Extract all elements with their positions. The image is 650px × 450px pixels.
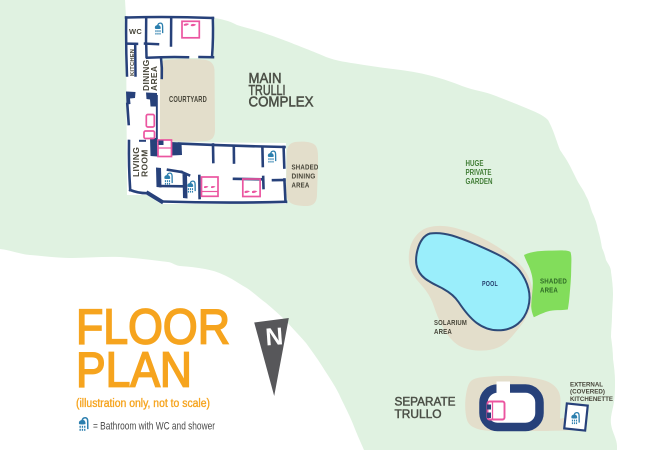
- svg-text:KITCHENETTE: KITCHENETTE: [570, 396, 614, 403]
- svg-text:KITCHEN: KITCHEN: [130, 49, 136, 76]
- svg-text:ROOM: ROOM: [140, 149, 150, 177]
- svg-text:HUGE: HUGE: [466, 159, 485, 168]
- svg-text:EXTERNAL: EXTERNAL: [570, 382, 603, 389]
- svg-text:AREA: AREA: [540, 288, 558, 295]
- svg-text:GARDEN: GARDEN: [466, 177, 493, 186]
- svg-text:PRIVATE: PRIVATE: [466, 168, 493, 177]
- svg-text:DINING: DINING: [292, 174, 316, 181]
- svg-text:PLAN: PLAN: [76, 343, 192, 398]
- svg-text:COURTYARD: COURTYARD: [169, 94, 207, 104]
- svg-text:SHADED: SHADED: [540, 279, 567, 286]
- svg-text:N: N: [264, 323, 284, 351]
- svg-text:SEPARATE: SEPARATE: [395, 396, 456, 408]
- svg-text:COMPLEX: COMPLEX: [249, 94, 314, 111]
- svg-text:(COVERED): (COVERED): [570, 389, 605, 396]
- svg-text:AREA: AREA: [292, 183, 310, 190]
- svg-text:AREA: AREA: [149, 66, 159, 91]
- svg-text:(illustration only, not to sca: (illustration only, not to scale): [76, 398, 210, 410]
- svg-text:SOLARIUM: SOLARIUM: [434, 320, 467, 327]
- svg-text:WC: WC: [129, 27, 142, 36]
- svg-text:TRULLO: TRULLO: [395, 409, 442, 421]
- svg-text:SHADED: SHADED: [292, 165, 319, 172]
- svg-text:POOL: POOL: [482, 281, 498, 288]
- svg-text:= Bathroom with WC and shower: = Bathroom with WC and shower: [93, 421, 215, 433]
- svg-text:AREA: AREA: [434, 329, 452, 336]
